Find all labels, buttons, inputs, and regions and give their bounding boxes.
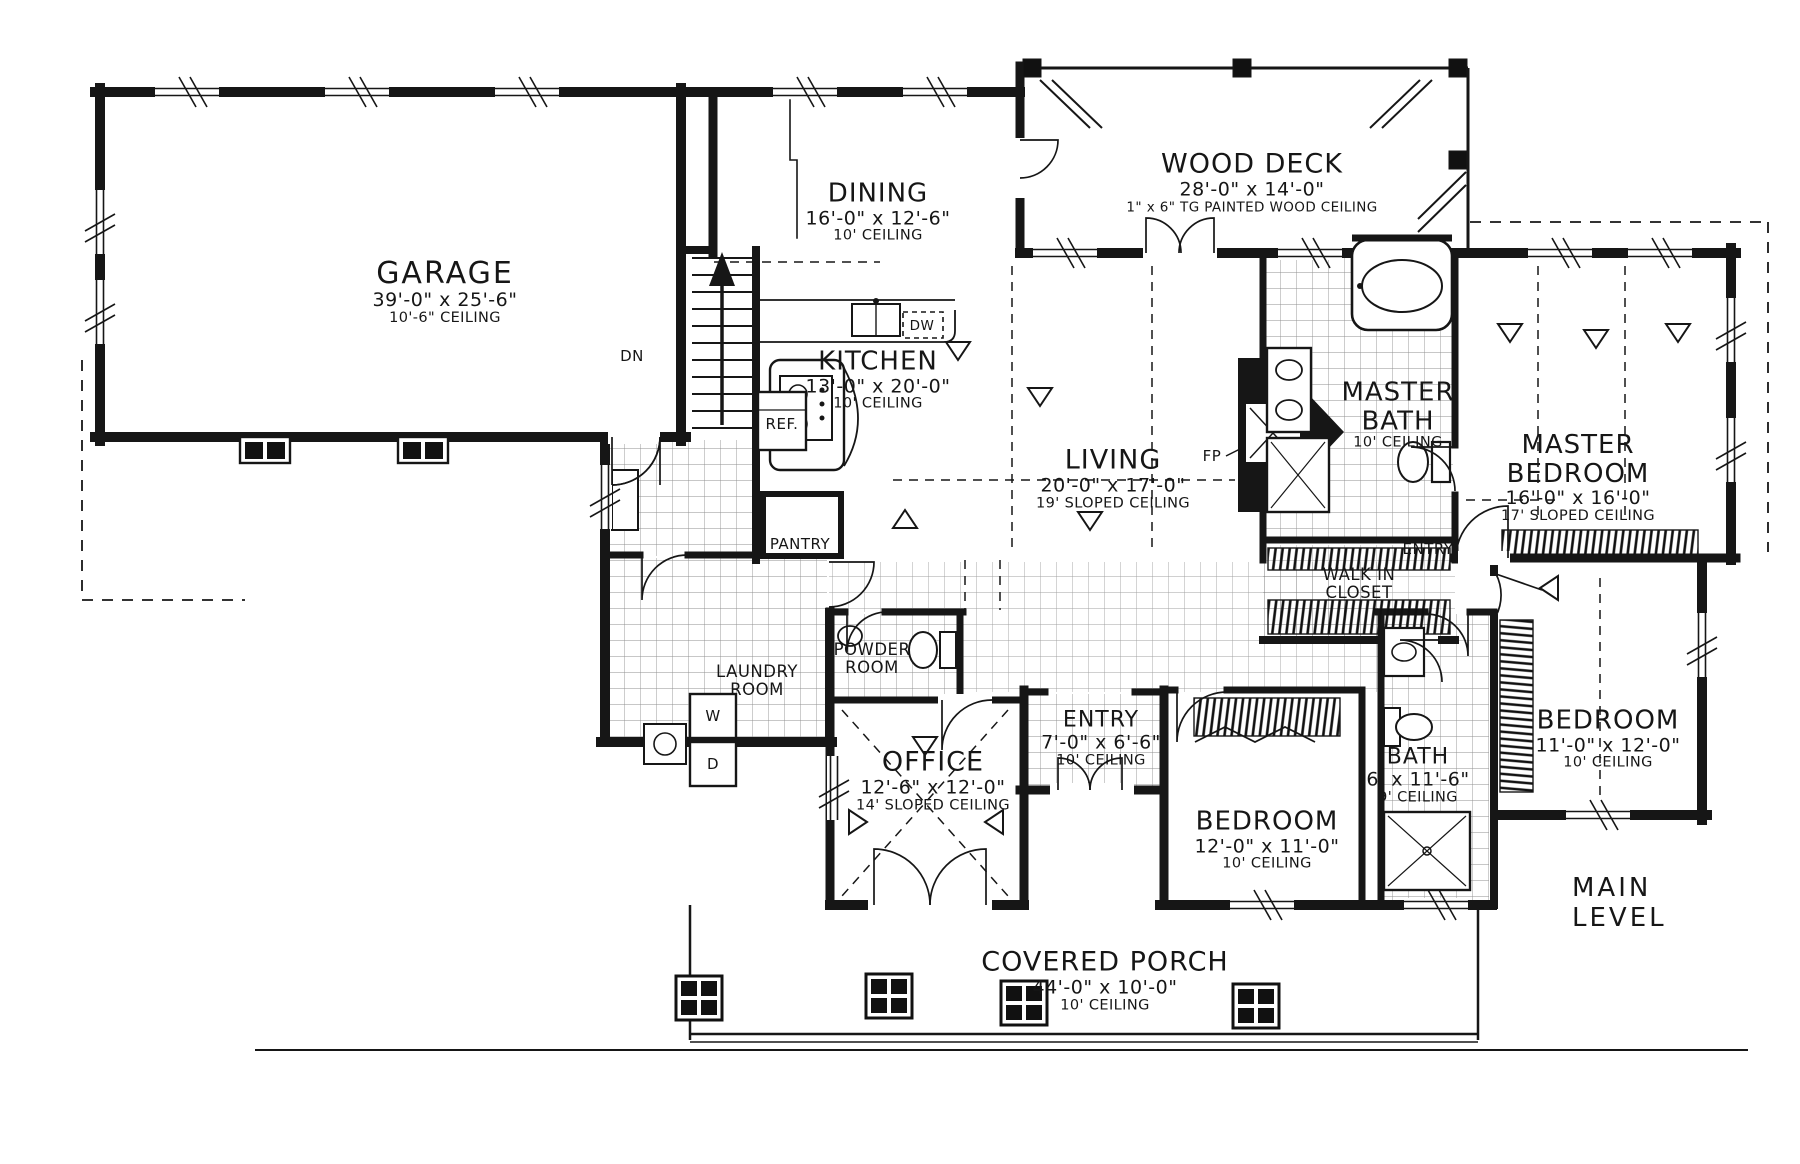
level-title: MAIN LEVEL bbox=[1572, 873, 1724, 933]
room-dims: 20'-0" x 17'-0" bbox=[1036, 475, 1190, 496]
room-name: COVERED PORCH bbox=[981, 948, 1228, 978]
room-name: OFFICE bbox=[856, 748, 1010, 778]
pantry-label: PANTRY bbox=[770, 535, 830, 553]
floor-plan-drawing bbox=[0, 0, 1800, 1164]
room-dims: 39'-0" x 25'-6" bbox=[373, 290, 518, 311]
room-dims: 12'-6" x 12'-0" bbox=[856, 777, 1010, 798]
room-dims: 44'-0" x 10'-0" bbox=[981, 977, 1228, 998]
kitchen-sink bbox=[852, 298, 900, 336]
dishwasher-label: DW bbox=[910, 318, 935, 334]
room-name: POWDER ROOM bbox=[817, 641, 927, 677]
dryer-label: D bbox=[707, 755, 719, 773]
room-dims: 7'-0" x 6'-6" bbox=[1041, 733, 1161, 754]
room-label-office: OFFICE 12'-6" x 12'-0" 14' SLOPED CEILIN… bbox=[856, 748, 1010, 815]
room-ceiling: 10' CEILING bbox=[1195, 857, 1340, 873]
room-ceiling: 1" x 6" TG PAINTED WOOD CEILING bbox=[1126, 200, 1377, 215]
room-name: LAUNDRY ROOM bbox=[697, 663, 817, 699]
room-name: BEDROOM bbox=[1195, 807, 1340, 836]
room-ceiling: 10' CEILING bbox=[1041, 754, 1161, 770]
room-ceiling: 19' SLOPED CEILING bbox=[1036, 496, 1190, 512]
room-label-wood-deck: WOOD DECK 28'-0" x 14'-0" 1" x 6" TG PAI… bbox=[1126, 149, 1377, 214]
stairs bbox=[692, 252, 752, 428]
room-label-master-bath: MASTER BATH 10' CEILING bbox=[1323, 378, 1473, 451]
room-ceiling: 10' CEILING bbox=[806, 397, 951, 413]
room-label-bedroom-center: BEDROOM 12'-0" x 11'-0" 10' CEILING bbox=[1195, 807, 1340, 872]
room-label-covered-porch: COVERED PORCH 44'-0" x 10'-0" 10' CEILIN… bbox=[981, 948, 1228, 1015]
room-label-walk-in-closet: WALK IN CLOSET bbox=[1304, 566, 1414, 602]
room-name: MASTER BEDROOM bbox=[1488, 431, 1668, 488]
toilet-bowl bbox=[1396, 714, 1432, 740]
floor-plan: GARAGE 39'-0" x 25'-6" 10'-6" CEILING DI… bbox=[0, 0, 1800, 1164]
fireplace-label: FP bbox=[1203, 447, 1222, 465]
room-dims: 6' x 11'-6" bbox=[1366, 770, 1469, 791]
room-dims: 13'-0" x 20'-0" bbox=[806, 376, 951, 397]
room-name: WOOD DECK bbox=[1126, 149, 1377, 179]
washer-label: W bbox=[705, 707, 720, 725]
room-ceiling: 10'-6" CEILING bbox=[373, 311, 518, 327]
double-vanity bbox=[1267, 348, 1311, 432]
room-ceiling: 10' CEILING bbox=[981, 998, 1228, 1014]
room-label-bedroom-right: BEDROOM 11'-0" x 12'-0" 10' CEILING bbox=[1536, 706, 1681, 771]
room-name: KITCHEN bbox=[806, 347, 951, 376]
room-name: ENTRY bbox=[1041, 708, 1161, 732]
bathtub bbox=[1352, 238, 1452, 330]
room-dims: 16'-0" x 16'-0" bbox=[1488, 488, 1668, 509]
room-ceiling: 10' CEILING bbox=[1536, 756, 1681, 772]
vanity bbox=[1384, 628, 1424, 676]
room-name: MASTER BATH bbox=[1323, 378, 1473, 435]
room-label-bath: BATH 6' x 11'-6" 9' CEILING bbox=[1366, 745, 1469, 806]
room-label-master-bedroom: MASTER BEDROOM 16'-0" x 16'-0" 17' SLOPE… bbox=[1488, 431, 1668, 525]
room-dims: 11'-0" x 12'-0" bbox=[1536, 735, 1681, 756]
room-ceiling: 9' CEILING bbox=[1366, 791, 1469, 807]
room-name: LIVING bbox=[1036, 446, 1190, 476]
room-ceiling: 14' SLOPED CEILING bbox=[856, 798, 1010, 814]
room-name: GARAGE bbox=[373, 257, 518, 290]
room-name: DINING bbox=[806, 179, 951, 208]
room-label-dining: DINING 16'-0" x 12'-6" 10' CEILING bbox=[806, 179, 951, 244]
room-label-kitchen: KITCHEN 13'-0" x 20'-0" 10' CEILING bbox=[806, 347, 951, 412]
room-dims: 12'-0" x 11'-0" bbox=[1195, 836, 1340, 857]
refrigerator-label: REF. bbox=[766, 415, 799, 433]
room-name: WALK IN CLOSET bbox=[1304, 566, 1414, 602]
room-label-entry: ENTRY 7'-0" x 6'-6" 10' CEILING bbox=[1041, 708, 1161, 769]
room-name: BEDROOM bbox=[1536, 706, 1681, 735]
room-label-powder-room: POWDER ROOM bbox=[817, 641, 927, 677]
shower bbox=[1384, 812, 1470, 890]
utility-sink bbox=[644, 724, 686, 764]
room-dims: 28'-0" x 14'-0" bbox=[1126, 179, 1377, 200]
entry-hall-label: ENTRY bbox=[1403, 540, 1454, 558]
room-name: BATH bbox=[1366, 745, 1469, 769]
stairs-dn-label: DN bbox=[620, 347, 644, 365]
shower bbox=[1267, 438, 1329, 512]
room-label-garage: GARAGE 39'-0" x 25'-6" 10'-6" CEILING bbox=[373, 257, 518, 327]
toilet-tank bbox=[940, 632, 956, 668]
room-label-laundry-room: LAUNDRY ROOM bbox=[697, 663, 817, 699]
room-ceiling: 10' CEILING bbox=[1323, 436, 1473, 452]
room-ceiling: 10' CEILING bbox=[806, 229, 951, 245]
room-dims: 16'-0" x 12'-6" bbox=[806, 208, 951, 229]
room-label-living: LIVING 20'-0" x 17'-0" 19' SLOPED CEILIN… bbox=[1036, 446, 1190, 513]
room-ceiling: 17' SLOPED CEILING bbox=[1488, 509, 1668, 525]
